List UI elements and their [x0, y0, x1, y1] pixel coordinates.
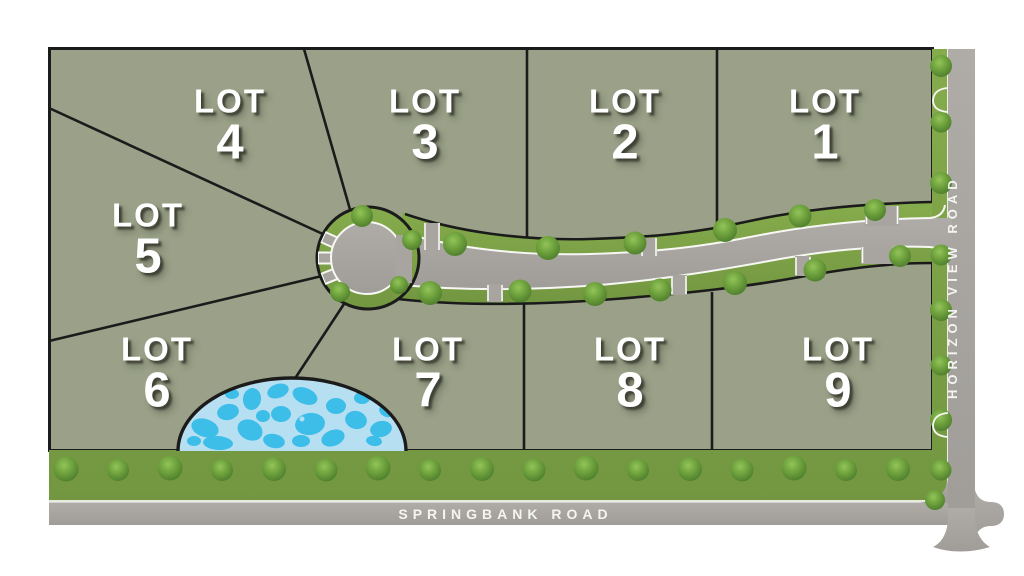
springbank-road-pavement — [49, 503, 975, 526]
driveway-stub — [424, 223, 440, 251]
driveway-stub — [487, 284, 503, 302]
intersection-east-arm — [975, 490, 1004, 538]
plat-map: LOT 1 LOT 2 LOT 3 LOT 4 LOT 5 LOT 6 LOT … — [0, 0, 1024, 576]
horizon-view-road-pavement — [948, 49, 975, 525]
driveway-stub — [671, 275, 687, 295]
plat-map-graphic — [0, 0, 1024, 576]
